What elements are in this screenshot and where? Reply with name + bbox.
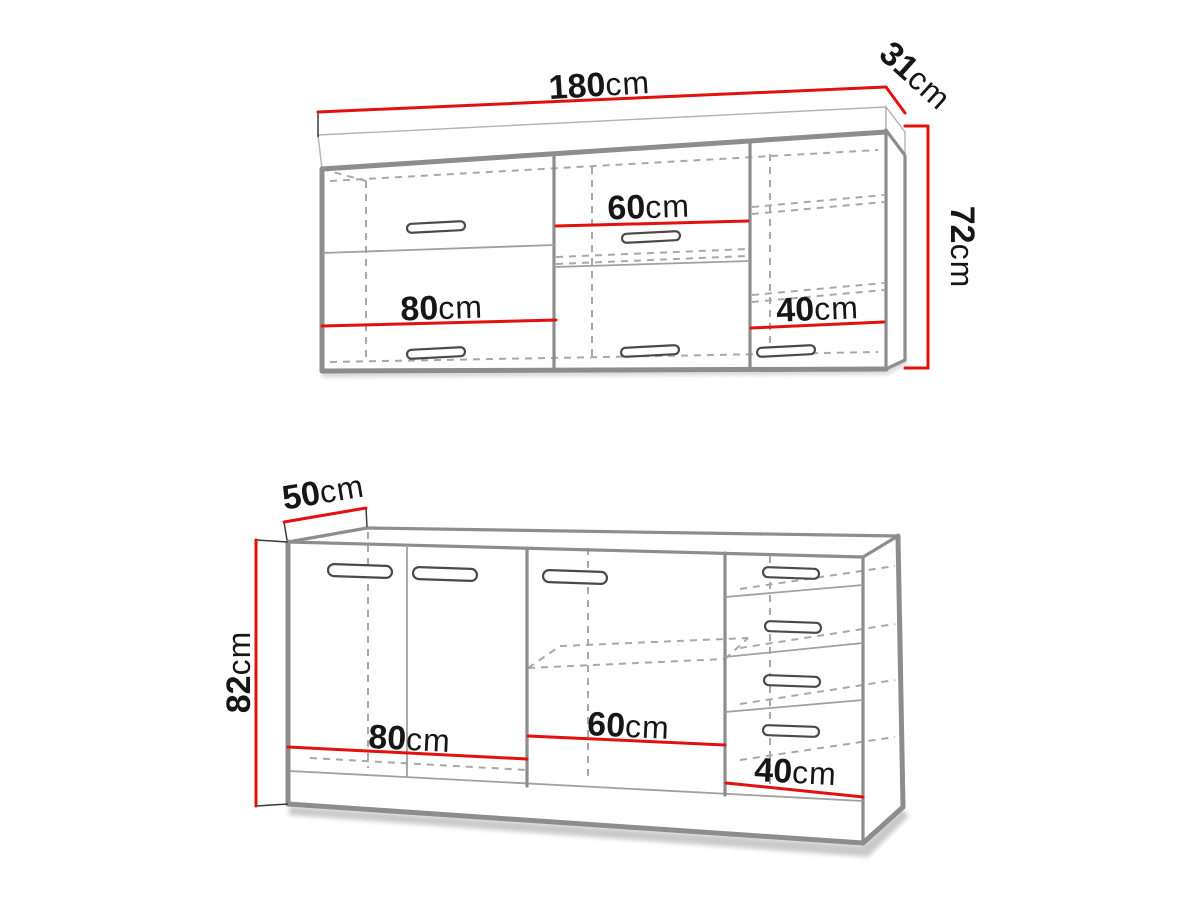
drawer-handle: [765, 621, 821, 633]
door-handle: [622, 231, 680, 243]
dim-label-upper-40: 40cm: [775, 288, 859, 330]
cabinet-dimension-diagram: 180cm 31cm 72cm 80cm 60cm 40cm: [0, 0, 1200, 899]
dim-label-180: 180cm: [548, 63, 652, 107]
dim-label-lower-80: 80cm: [367, 718, 451, 760]
drawer-handle: [764, 675, 820, 687]
door-handle: [328, 564, 392, 578]
diagram-canvas: 180cm 31cm 72cm 80cm 60cm 40cm: [0, 0, 1200, 899]
dim-label-upper-80: 80cm: [400, 288, 484, 329]
drawer-handle: [763, 725, 819, 737]
door-handle: [407, 347, 465, 359]
upper-cabinet: 180cm 31cm 72cm 80cm 60cm 40cm: [318, 34, 981, 377]
lower-cabinet: 50cm 82cm 80cm 60cm 40cm: [220, 467, 909, 857]
dim-label-31: 31cm: [872, 34, 959, 117]
dim-label-lower-60: 60cm: [586, 705, 670, 747]
dim-label-72: 72cm: [943, 206, 981, 288]
door-handle: [413, 567, 477, 581]
dim-label-lower-40: 40cm: [753, 751, 837, 793]
upper-front-face: [322, 132, 886, 371]
upper-side-panel: [886, 132, 905, 369]
dim-label-82: 82cm: [220, 631, 258, 713]
dim-label-upper-60: 60cm: [607, 187, 691, 228]
lower-front-face: [288, 542, 863, 843]
dim-line-depth-31: [886, 87, 905, 113]
door-handle: [757, 345, 815, 357]
drawer-handle: [763, 567, 819, 579]
door-handle: [407, 221, 465, 233]
door-handle: [543, 570, 607, 584]
door-handle: [621, 345, 679, 357]
